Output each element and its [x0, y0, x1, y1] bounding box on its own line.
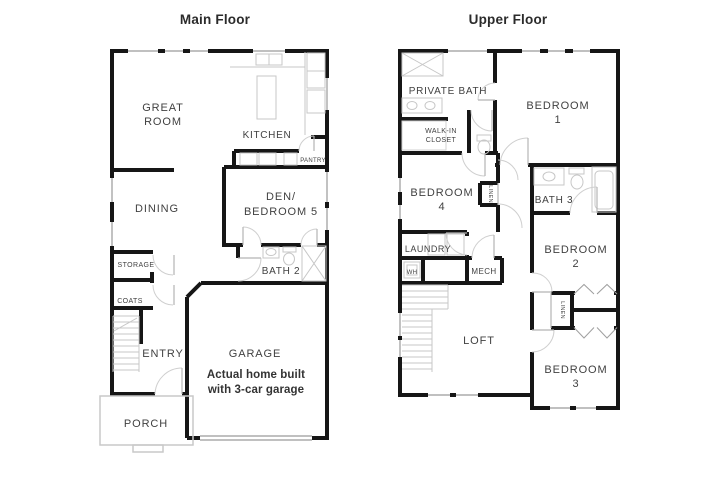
bedroom2-label-line2: 2 — [572, 258, 579, 270]
bedroom3-label-line1: BEDROOM — [544, 364, 607, 376]
den-label-line1: DEN/ — [266, 191, 296, 203]
bedroom3-label-line2: 3 — [572, 378, 579, 390]
linen-closet-label: LINEN — [559, 301, 565, 319]
mech-label: MECH — [471, 267, 496, 276]
private-bath-label: PRIVATE BATH — [409, 86, 487, 97]
bath3-label: BATH 3 — [535, 195, 573, 206]
storage-label: STORAGE — [118, 262, 155, 269]
garage-note-line2: with 3-car garage — [207, 384, 304, 396]
great-room-label-line2: ROOM — [144, 116, 182, 128]
bedroom4-label-line2: 4 — [438, 201, 445, 213]
dining-label: DINING — [135, 203, 179, 215]
bedroom2-label-line1: BEDROOM — [544, 244, 607, 256]
linen-hall-label: LINEN — [487, 185, 493, 203]
garage-note-line1: Actual home built — [207, 369, 305, 381]
entry-label: ENTRY — [142, 348, 184, 360]
bedroom1-label-line1: BEDROOM — [526, 100, 589, 112]
kitchen-label: KITCHEN — [243, 130, 292, 141]
laundry-label: LAUNDRY — [405, 244, 451, 254]
pantry-label: PANTRY — [300, 158, 326, 164]
walk-in-closet-label-line2: CLOSET — [426, 137, 457, 144]
upper-floor-title: Upper Floor — [469, 12, 548, 27]
walk-in-closet-label-line1: WALK-IN — [425, 128, 457, 135]
water-heater-label: WH — [407, 270, 418, 276]
floorplan-page: Main Floor GREAT ROOM KITCHEN PANTRY DIN… — [0, 0, 720, 479]
bedroom4-label-line1: BEDROOM — [410, 187, 473, 199]
floor-plan-canvas: Main Floor GREAT ROOM KITCHEN PANTRY DIN… — [0, 0, 720, 479]
main-floor-title: Main Floor — [180, 12, 251, 27]
great-room-label-line1: GREAT — [142, 102, 184, 114]
main-floor-plan: Main Floor GREAT ROOM KITCHEN PANTRY DIN… — [100, 12, 329, 452]
upper-floor-plan: Upper Floor PRIVATE BATH WALK-IN CLOSET … — [398, 12, 620, 410]
porch-label: PORCH — [124, 418, 168, 430]
bedroom1-label-line2: 1 — [554, 114, 561, 126]
garage-label: GARAGE — [229, 348, 281, 360]
coats-label: COATS — [117, 298, 143, 305]
den-label-line2: BEDROOM 5 — [244, 206, 318, 218]
loft-label: LOFT — [463, 335, 495, 347]
bath2-label: BATH 2 — [262, 266, 300, 277]
